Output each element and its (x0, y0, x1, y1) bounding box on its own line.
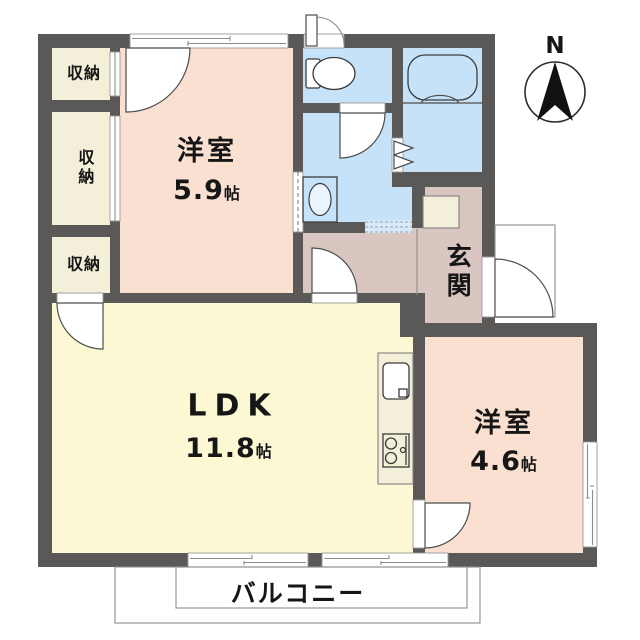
wall-toilet-bottom-b (385, 103, 392, 113)
toilet-bowl (313, 58, 355, 90)
kitchen-icons (378, 353, 413, 484)
toilet-icon (306, 58, 355, 90)
wall-western2-left-b (413, 548, 425, 553)
shoe-cabinet (423, 196, 459, 228)
compass-north-label: N (545, 34, 564, 58)
washer-drum (309, 184, 331, 216)
compass (525, 62, 585, 122)
ldk-size-value: 11.8 (185, 433, 256, 464)
wall-entrance-corner (400, 293, 425, 323)
floor-plan-drawing (0, 0, 640, 640)
closet-middle-label: 収納 (76, 149, 93, 187)
wall-western2-top (400, 323, 597, 337)
wall-bottom (38, 553, 597, 567)
ldk-balcony-window-right (322, 553, 448, 567)
wall-right-upper (482, 34, 495, 257)
entrance-doorway (482, 257, 495, 317)
hallway-doorway (312, 293, 357, 303)
closet-bottom-label: 収納 (67, 257, 101, 274)
western-room-1-size-value: 5.9 (173, 175, 224, 206)
wall-ldk-top-a (38, 293, 57, 303)
entrance-label: 玄関 (444, 243, 470, 301)
western-room-1-label: 洋室 (177, 138, 237, 166)
western2-doorway (413, 500, 425, 548)
wall-right-lower (583, 323, 597, 442)
toilet-window-leaf (306, 15, 317, 46)
western2-window (583, 442, 597, 547)
western1-window (130, 34, 288, 48)
ldk-size: 11.8帖 (185, 435, 273, 463)
floor-plan: 収納 収納 収納 洋室 5.9帖 LDK 11.8帖 洋室 4.6帖 玄関 バル… (0, 0, 640, 640)
toilet-doorway (340, 103, 385, 113)
wall-bath-bottom (392, 172, 495, 187)
ldk-balcony-window-left (188, 553, 308, 567)
wall-closet-divider-2 (52, 225, 120, 237)
western-room-2-size: 4.6帖 (470, 448, 538, 476)
wall-western1-right (293, 34, 303, 303)
wall-right-lower-stub (583, 547, 597, 567)
western-room-2-size-value: 4.6 (470, 446, 521, 477)
western-room-2-label: 洋室 (474, 410, 534, 438)
wall-toilet-bottom-a (303, 103, 340, 113)
balcony-label: バルコニー (231, 581, 366, 607)
ldk-floor (52, 303, 413, 553)
wall-western2-left-a (413, 337, 425, 500)
closet-top-label: 収納 (67, 66, 101, 83)
bathroom-floor (403, 48, 482, 172)
wall-washroom-bottom (303, 222, 365, 233)
ldk-label: LDK (187, 390, 278, 422)
closet-bottom-doorway (57, 293, 103, 303)
wall-closet-divider-1 (52, 100, 120, 112)
entrance-door-swing (495, 259, 553, 317)
ldk-size-unit: 帖 (256, 442, 273, 461)
wall-ldk-top-b (103, 293, 312, 303)
kitchen-sink (383, 363, 409, 399)
western-room-1-size-unit: 帖 (224, 184, 241, 203)
western-room-2-size-unit: 帖 (521, 455, 538, 474)
western-room-1-size: 5.9帖 (173, 177, 241, 205)
